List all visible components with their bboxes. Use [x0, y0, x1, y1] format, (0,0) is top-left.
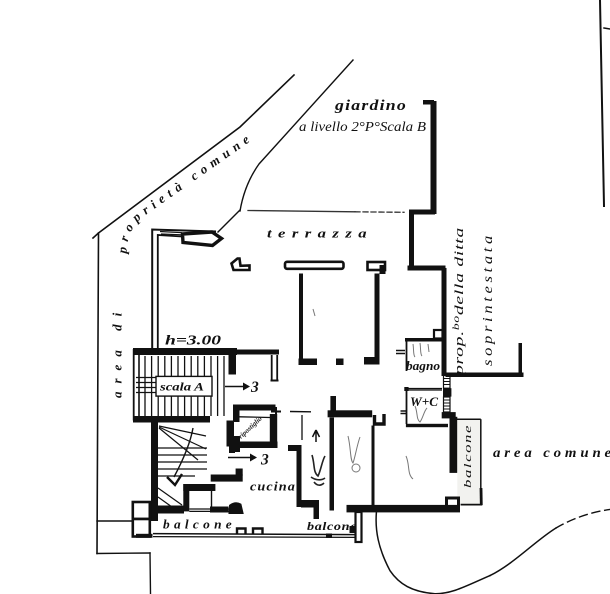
svg-text:3: 3 [260, 452, 269, 469]
svg-text:terrazza: terrazza [267, 226, 373, 241]
svg-text:3: 3 [250, 379, 259, 396]
svg-text:area di: area di [110, 305, 125, 398]
svg-text:h=3.00: h=3.00 [165, 333, 221, 348]
svg-text:bagno: bagno [406, 359, 440, 373]
svg-text:giardino: giardino [334, 98, 407, 114]
svg-text:area comune: area comune [493, 445, 610, 460]
svg-text:balcone: balcone [462, 424, 474, 488]
svg-text:prop.bodella ditta: prop.bodella ditta [451, 227, 466, 377]
svg-text:a livello 2°P°Scala B: a livello 2°P°Scala B [299, 119, 426, 134]
svg-text:balcone: balcone [307, 521, 357, 533]
svg-text:soprintestata: soprintestata [480, 232, 495, 366]
svg-text:cucina: cucina [250, 479, 296, 494]
svg-text:balcone: balcone [163, 518, 236, 532]
svg-text:W+C: W+C [410, 395, 439, 409]
svg-text:scala A: scala A [159, 380, 204, 394]
